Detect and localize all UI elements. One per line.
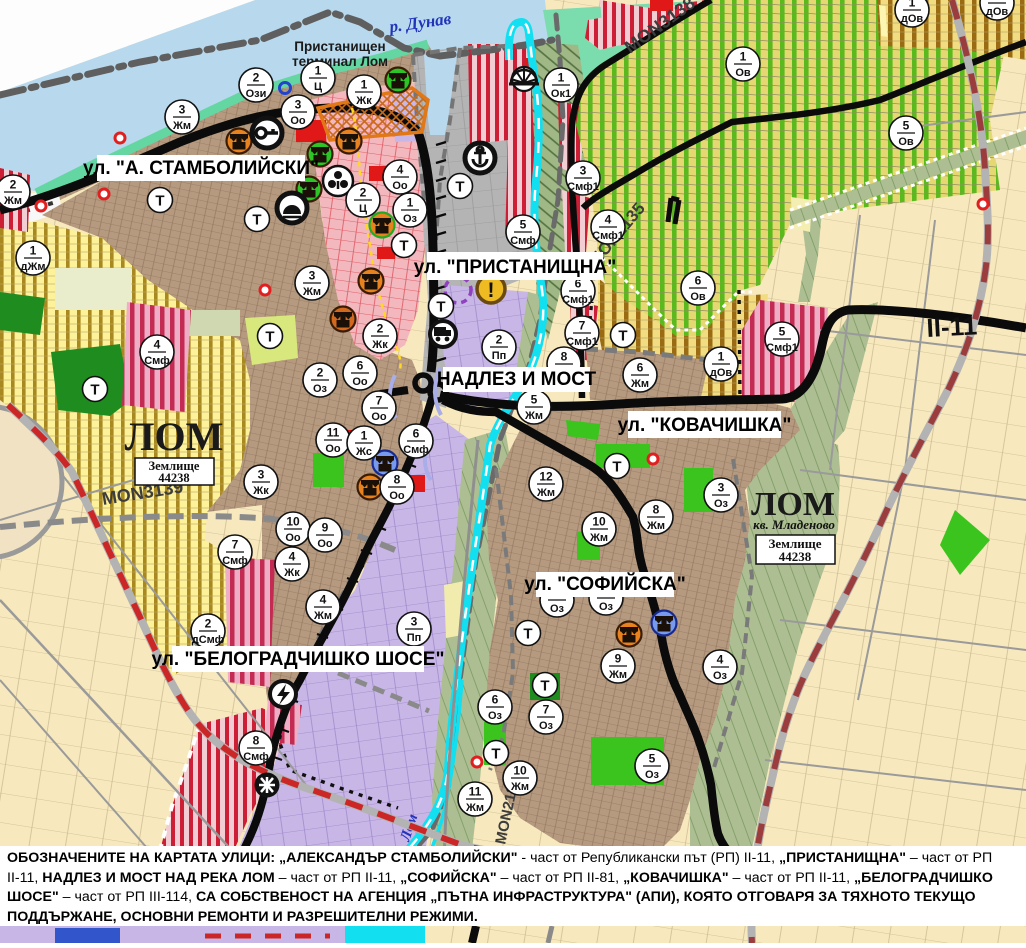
svg-text:1: 1 xyxy=(361,429,368,443)
svg-text:4: 4 xyxy=(717,653,724,667)
svg-text:2: 2 xyxy=(253,71,260,85)
svg-text:Жм: Жм xyxy=(536,487,555,499)
svg-text:2: 2 xyxy=(317,366,324,380)
svg-text:7: 7 xyxy=(543,703,550,717)
svg-text:6: 6 xyxy=(357,359,364,373)
svg-text:10: 10 xyxy=(592,515,606,529)
svg-text:3: 3 xyxy=(309,269,316,283)
svg-text:дОв: дОв xyxy=(986,6,1009,18)
svg-text:Смф1: Смф1 xyxy=(566,336,598,348)
svg-text:!: ! xyxy=(488,279,495,302)
svg-text:44238: 44238 xyxy=(158,471,189,485)
svg-text:3: 3 xyxy=(580,164,587,178)
svg-text:Смф: Смф xyxy=(403,444,429,456)
svg-text:Жм: Жм xyxy=(510,781,529,793)
svg-text:Смф1: Смф1 xyxy=(766,342,798,354)
svg-text:9: 9 xyxy=(322,521,329,535)
svg-text:Оз: Оз xyxy=(403,213,418,225)
svg-text:ул. "СОФИЙСКА": ул. "СОФИЙСКА" xyxy=(524,573,686,595)
svg-text:ЛОМ: ЛОМ xyxy=(125,414,224,459)
svg-text:Оо: Оо xyxy=(285,532,301,544)
svg-text:6: 6 xyxy=(695,274,702,288)
svg-text:2: 2 xyxy=(360,186,367,200)
svg-text:3: 3 xyxy=(179,103,186,117)
svg-text:7: 7 xyxy=(376,394,383,408)
svg-text:II-11: II-11 xyxy=(926,310,978,343)
svg-text:1: 1 xyxy=(718,350,725,364)
svg-text:Пристанищен: Пристанищен xyxy=(294,39,385,54)
svg-text:4: 4 xyxy=(154,338,161,352)
svg-text:Ози: Ози xyxy=(246,88,267,100)
svg-text:Жм: Жм xyxy=(302,286,321,298)
svg-text:дОв: дОв xyxy=(710,367,733,379)
svg-text:Пп: Пп xyxy=(407,632,422,644)
svg-text:9: 9 xyxy=(615,652,622,666)
svg-text:8: 8 xyxy=(253,734,260,748)
svg-text:Жм: Жм xyxy=(630,378,649,390)
svg-text:дЖм: дЖм xyxy=(20,261,45,273)
svg-text:Ок1: Ок1 xyxy=(551,88,571,100)
svg-text:Смф: Смф xyxy=(510,235,536,247)
svg-text:10: 10 xyxy=(286,515,300,529)
svg-text:8: 8 xyxy=(561,350,568,364)
svg-text:Т: Т xyxy=(540,678,549,695)
svg-text:Т: Т xyxy=(491,746,500,763)
svg-text:Жм: Жм xyxy=(3,195,22,207)
svg-text:ул. "А. СТАМБОЛИЙСКИ": ул. "А. СТАМБОЛИЙСКИ" xyxy=(83,157,319,179)
svg-text:Жм: Жм xyxy=(589,532,608,544)
svg-text:Оз: Оз xyxy=(313,383,328,395)
svg-text:Т: Т xyxy=(155,193,164,210)
svg-text:Т: Т xyxy=(90,382,99,399)
svg-text:1: 1 xyxy=(558,71,565,85)
svg-text:Т: Т xyxy=(455,179,464,196)
svg-text:Жм: Жм xyxy=(313,610,332,622)
svg-text:2: 2 xyxy=(496,333,503,347)
svg-text:Смф: Смф xyxy=(243,751,269,763)
svg-text:1: 1 xyxy=(909,0,916,10)
svg-text:7: 7 xyxy=(232,538,239,552)
svg-text:Жс: Жс xyxy=(355,446,372,458)
svg-text:11: 11 xyxy=(469,785,482,799)
svg-text:Оо: Оо xyxy=(290,115,306,127)
svg-text:Жм: Жм xyxy=(646,520,665,532)
svg-text:Ц: Ц xyxy=(314,81,322,93)
svg-text:4: 4 xyxy=(605,213,612,227)
svg-text:Оо: Оо xyxy=(352,376,368,388)
svg-text:Жм: Жм xyxy=(524,410,543,422)
svg-text:7: 7 xyxy=(579,319,586,333)
svg-text:ул. "КОВАЧИШКА": ул. "КОВАЧИШКА" xyxy=(618,415,792,436)
svg-text:1: 1 xyxy=(407,196,414,210)
svg-text:6: 6 xyxy=(492,693,499,707)
svg-text:НАДЛЕЗ И МОСТ: НАДЛЕЗ И МОСТ xyxy=(437,369,597,390)
svg-text:Жк: Жк xyxy=(355,95,372,107)
svg-text:Т: Т xyxy=(523,626,532,643)
svg-text:3: 3 xyxy=(718,481,725,495)
svg-text:Жк: Жк xyxy=(371,339,388,351)
svg-text:Оз: Оз xyxy=(550,603,565,615)
svg-text:1: 1 xyxy=(361,78,368,92)
svg-text:44238: 44238 xyxy=(779,549,812,564)
svg-text:Оз: Оз xyxy=(599,601,614,613)
svg-text:1: 1 xyxy=(315,64,322,78)
svg-text:12: 12 xyxy=(539,470,553,484)
svg-text:Жк: Жк xyxy=(252,485,269,497)
svg-text:Смф: Смф xyxy=(144,355,170,367)
svg-text:5: 5 xyxy=(903,119,910,133)
svg-text:6: 6 xyxy=(637,361,644,375)
svg-text:1: 1 xyxy=(30,244,37,258)
svg-text:Т: Т xyxy=(265,329,274,346)
svg-text:Оз: Оз xyxy=(714,498,729,510)
svg-text:Смф: Смф xyxy=(222,555,248,567)
svg-text:Оо: Оо xyxy=(392,180,408,192)
svg-text:6: 6 xyxy=(413,427,420,441)
svg-text:кв. Младеново: кв. Младеново xyxy=(753,517,835,532)
svg-text:4: 4 xyxy=(397,163,404,177)
svg-text:Т: Т xyxy=(612,459,621,476)
svg-text:Жм: Жм xyxy=(172,120,191,132)
svg-text:Пп: Пп xyxy=(492,350,507,362)
svg-text:2: 2 xyxy=(10,178,17,192)
svg-text:10: 10 xyxy=(513,764,527,778)
svg-text:2: 2 xyxy=(377,322,384,336)
svg-text:3: 3 xyxy=(411,615,418,629)
svg-text:8: 8 xyxy=(653,503,660,517)
svg-text:Жк: Жк xyxy=(283,567,300,579)
svg-text:4: 4 xyxy=(320,593,327,607)
svg-text:ул. "БЕЛОГРАДЧИШКО ШОСЕ": ул. "БЕЛОГРАДЧИШКО ШОСЕ" xyxy=(152,649,445,670)
svg-text:2: 2 xyxy=(205,617,212,631)
svg-text:1: 1 xyxy=(740,50,747,64)
svg-text:3: 3 xyxy=(295,98,302,112)
svg-text:5: 5 xyxy=(520,218,527,232)
svg-text:Оо: Оо xyxy=(371,411,387,423)
svg-text:Т: Т xyxy=(618,328,627,345)
svg-text:Ц: Ц xyxy=(359,203,367,215)
svg-text:Жм: Жм xyxy=(608,669,627,681)
svg-text:Оо: Оо xyxy=(317,538,333,550)
svg-text:3: 3 xyxy=(258,468,265,482)
svg-text:дОв: дОв xyxy=(901,13,924,25)
svg-text:Жм: Жм xyxy=(465,802,484,814)
svg-text:Смф1: Смф1 xyxy=(567,181,599,193)
svg-text:Оо: Оо xyxy=(325,443,341,455)
svg-text:ул. "ПРИСТАНИЩНА": ул. "ПРИСТАНИЩНА" xyxy=(414,257,617,278)
svg-text:1: 1 xyxy=(994,0,1001,3)
svg-text:4: 4 xyxy=(289,550,296,564)
svg-text:Оз: Оз xyxy=(488,710,503,722)
svg-text:Т: Т xyxy=(399,238,408,255)
svg-text:11: 11 xyxy=(327,426,340,440)
svg-text:5: 5 xyxy=(649,752,656,766)
svg-text:Ов: Ов xyxy=(898,136,914,148)
svg-text:Смф1: Смф1 xyxy=(592,230,624,242)
svg-text:Ов: Ов xyxy=(735,67,751,79)
svg-text:Оз: Оз xyxy=(713,670,728,682)
svg-text:Ов: Ов xyxy=(690,291,706,303)
svg-text:5: 5 xyxy=(779,325,786,339)
svg-text:Оз: Оз xyxy=(645,769,660,781)
svg-text:Оо: Оо xyxy=(389,490,405,502)
svg-text:Смф1: Смф1 xyxy=(562,294,594,306)
svg-text:дСмф: дСмф xyxy=(192,634,225,646)
svg-text:Т: Т xyxy=(436,299,445,316)
svg-text:5: 5 xyxy=(531,393,538,407)
svg-text:Оз: Оз xyxy=(539,720,554,732)
svg-text:8: 8 xyxy=(394,473,401,487)
svg-text:Т: Т xyxy=(252,212,261,229)
